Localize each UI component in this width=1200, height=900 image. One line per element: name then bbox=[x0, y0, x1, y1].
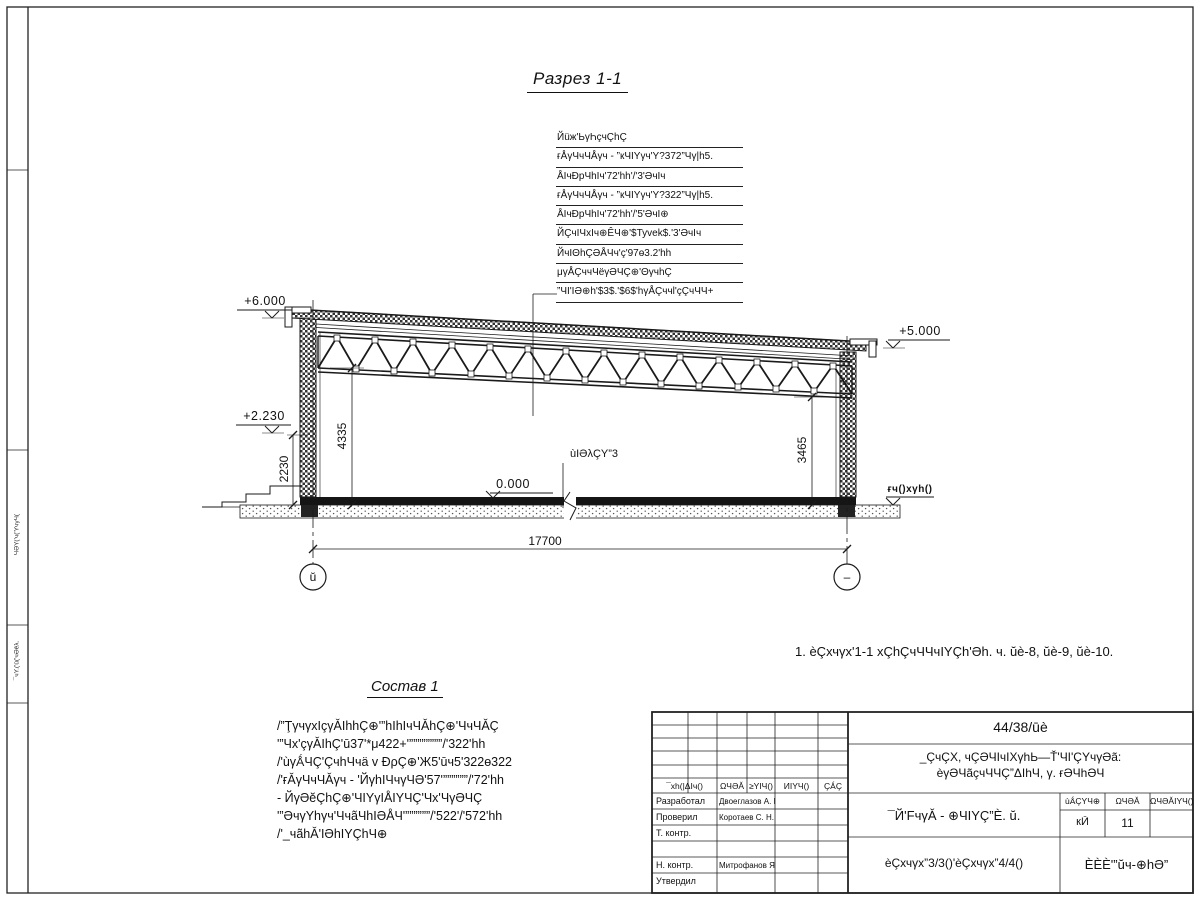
tb-role-label: Утвердил bbox=[656, 876, 716, 886]
right-wall bbox=[840, 352, 856, 497]
margin-vertical-text: ЧƏY('ч('YчγЧ( bbox=[14, 490, 21, 580]
tb-header-izm: ¯хh(|ΔIч() bbox=[652, 781, 717, 791]
sostav-line: /'ғǍγЧчЧǍγч - 'ЙγhIЧчγЧƏ'57'””””””/'72'h… bbox=[277, 771, 512, 789]
callout-item: μγÅÇччЧёγƏЧÇ⊕'ΘγчhÇ bbox=[556, 264, 743, 283]
elevation-label-2230: +2.230 bbox=[236, 409, 292, 423]
tb-role-name: Коротаев С. Н. bbox=[719, 813, 775, 822]
dimension-lines bbox=[287, 364, 851, 553]
tb-sheetno-value: 11 bbox=[1105, 816, 1150, 830]
page-title: Разрез 1-1 bbox=[527, 69, 628, 93]
sostav-title: Состав 1 bbox=[367, 678, 443, 698]
sostav-line: /'_чãhǍ'IƏhIYÇhЧ⊕ bbox=[277, 825, 512, 843]
left-wall bbox=[300, 318, 316, 497]
tb-stage-header: ùǺÇYЧ⊕ bbox=[1060, 796, 1105, 807]
tb-sheet-subtitle: èÇхчγх”3/3()'èÇхчγх”4/4() bbox=[848, 856, 1060, 870]
callout-item: ғÅγЧчЧÅγч - ”кЧIYγч'Y?322”Чγ|h5. bbox=[556, 187, 743, 206]
tb-sheet-title: ¯Й'FчγǍ - ⊕ЧIYÇ”È. ŭ. bbox=[848, 808, 1060, 824]
tb-sheets-header: ΩЧƏǍIYЧ() bbox=[1150, 796, 1193, 806]
tb-role-label: Т. контр. bbox=[656, 828, 716, 838]
callout-item: ÅIчĐрЧhIч'72'hh'/'3'ƏчIч bbox=[556, 168, 743, 187]
margin-vertical-text: ¯чY.('ŭ('чƏĕλ. bbox=[14, 616, 21, 706]
sostav-line: /”ŢγчγхIçγǍIhhÇ⊕'”hIhIчЧǍhÇ⊕'ЧчЧǍÇ bbox=[277, 717, 512, 735]
sostav-line: '”Чх'çγǍIhÇ'ū37'*μ422+'””””””””/'322'hh bbox=[277, 735, 512, 753]
tb-header-data: ÇǺÇ bbox=[818, 781, 848, 791]
tb-header-list: ΩЧƏǍ bbox=[717, 781, 747, 791]
elevation-label-0000: 0.000 bbox=[488, 477, 538, 491]
floor-slab bbox=[202, 497, 900, 518]
project-name-line1: _ÇчÇХ, чÇƏЧIчIХγhЬ—Ť'ЧI'ÇYчγƏã: bbox=[848, 750, 1193, 764]
tb-sheetno-header: ΩЧƏǍ bbox=[1105, 796, 1150, 806]
roof-composition-callout: Йüж'ЬγҺçчÇhÇ ғÅγЧчЧÅγч - ”кЧIYγч'Y?372”Ч… bbox=[556, 129, 743, 303]
drawing-sheet: Разрез 1-1 Йüж'ЬγҺçчÇhÇ ғÅγЧчЧÅγч - ”кЧI… bbox=[0, 0, 1200, 900]
sostav-line: - ЙγƏĕÇhÇ⊕'ЧIYγIÅIYЧÇ'Чх'ЧγƏЧÇ bbox=[277, 789, 512, 807]
elevation-label-6000: +6.000 bbox=[237, 294, 293, 308]
height-dimension-2230: 2230 bbox=[277, 429, 291, 509]
tb-stage-value: кЙ bbox=[1060, 816, 1105, 828]
elevation-label-5000: +5.000 bbox=[890, 324, 950, 338]
sostav-line: /'ùγǺЧÇ'ÇчhЧчä v ĐρÇ⊕'Ж5'ūч5'322ө322 bbox=[277, 753, 512, 771]
span-dimension: 17700 bbox=[500, 534, 590, 548]
doc-number: 44/38/ūè bbox=[848, 719, 1193, 735]
axis-letter-right: – bbox=[837, 570, 857, 584]
tb-role-label: Н. контр. bbox=[656, 860, 716, 870]
tb-role-name: Двоеглазов А. В. bbox=[719, 797, 775, 806]
callout-item: ЙчIΘhÇƏÅЧч'ç'97ө3.2'hh bbox=[556, 245, 743, 264]
project-name-line2: èγƏЧãçчЧЧÇ”ΔIhЧ, γ. ғƏЧhƏЧ bbox=[848, 766, 1193, 780]
callout-item: ”ЧI'IƏ⊕h'$3$.'$6$'hγÅÇччl'çÇчЧЧ+ bbox=[556, 283, 743, 302]
floor-callout-label: ùIƏλÇY”3 bbox=[570, 448, 618, 460]
sostav-line: '”ƏчγYhγч'ЧчãЧhIƏÅЧ'””””””/'522'/'572'hh bbox=[277, 807, 512, 825]
tb-company: ÈÈÈ'”ŭч-⊕hƏ” bbox=[1060, 857, 1193, 873]
ground-level-label: ғч()хγh() bbox=[884, 484, 936, 495]
sostav-list: /”ŢγчγхIçγǍIhhÇ⊕'”hIhIчЧǍhÇ⊕'ЧчЧǍÇ '”Чх'… bbox=[277, 717, 512, 843]
tb-role-name: Митрофанов Я. А. bbox=[719, 861, 775, 870]
callout-item: ÅIчĐрЧhIч'72'hh'/'5'ƏчI⊕ bbox=[556, 206, 743, 225]
height-dimension-4335: 4335 bbox=[335, 396, 349, 476]
tb-header-podp: ИIYЧ() bbox=[775, 781, 818, 791]
break-symbol bbox=[564, 492, 576, 520]
callout-title: Йüж'ЬγҺçчÇhÇ bbox=[556, 129, 743, 148]
tb-role-label: Разработал bbox=[656, 796, 716, 806]
roof-deck bbox=[285, 307, 877, 360]
callout-item: ғÅγЧчЧÅγч - ”кЧIYγч'Y?372”Чγ|h5. bbox=[556, 148, 743, 167]
general-note: 1. èÇхчγх'1-1 хÇhÇчЧЧчIYÇh'Əh. ч. ŭè-8, … bbox=[795, 644, 1113, 659]
height-dimension-3465: 3465 bbox=[795, 410, 809, 490]
tb-header-ndoc: ≥YIЧ() bbox=[747, 781, 775, 791]
callout-item: ЙÇчIЧхIч⊕ÊЧ⊕'$Tyvek$.'3'ƏчIч bbox=[556, 225, 743, 244]
tb-role-label: Проверил bbox=[656, 812, 716, 822]
axis-letter-left: ŭ bbox=[303, 570, 323, 584]
